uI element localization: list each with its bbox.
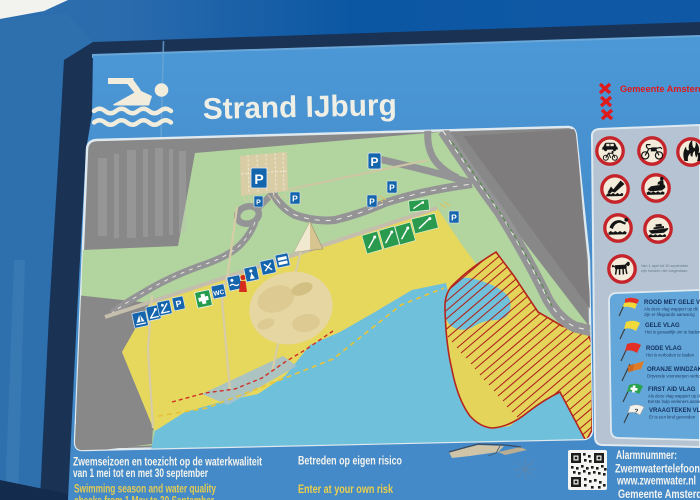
svg-text:Zwemseizoen en toezicht op de: Zwemseizoen en toezicht op de waterkwali…	[73, 457, 262, 469]
svg-text:P: P	[256, 200, 261, 207]
svg-text:P: P	[292, 194, 298, 204]
svg-text:www.zwemwater.nl: www.zwemwater.nl	[616, 474, 696, 488]
svg-text:ROOD MET GELE VLAG: ROOD MET GELE VLAG	[644, 300, 700, 306]
svg-text:Eerste hulp verleners aanwez: Eerste hulp verleners aanwez	[648, 399, 700, 404]
svg-text:Er is een kind gevonden: Er is een kind gevonden	[649, 415, 696, 420]
svg-text:Als deze vlag wappert op dez: Als deze vlag wappert op dez	[648, 394, 700, 399]
svg-text:P: P	[370, 155, 378, 169]
svg-text:GELE VLAG: GELE VLAG	[645, 323, 680, 329]
svg-text:Als deze vlag wappert op dit: Als deze vlag wappert op dit	[644, 307, 699, 312]
svg-text:Alarmnummer:: Alarmnummer:	[616, 448, 677, 462]
svg-text:Swimming season and water qual: Swimming season and water quality	[74, 484, 216, 496]
svg-text:P: P	[389, 183, 395, 193]
svg-text:Strand IJburg: Strand IJburg	[202, 89, 397, 126]
svg-text:Van 1 april tot 30 september: Van 1 april tot 30 september	[641, 264, 689, 268]
svg-text:Drijvende voorwerpen verbo: Drijvende voorwerpen verbo	[647, 374, 700, 379]
svg-text:checks from 1 May to 30 Septem: checks from 1 May to 30 September	[74, 496, 214, 500]
svg-text:VRAAGTEKEN VLAG: VRAAGTEKEN VLAG	[649, 408, 700, 414]
svg-text:Het is gevaarlijk om te baden: Het is gevaarlijk om te baden	[645, 330, 700, 335]
svg-text:van 1 mei tot en met 30 septem: van 1 mei tot en met 30 september	[73, 468, 208, 480]
svg-text:P: P	[369, 197, 375, 207]
svg-text:Gemeente Amsterdam: Gemeente Amsterdam	[620, 84, 700, 94]
svg-text:Het is verboden te baden: Het is verboden te baden	[646, 353, 695, 358]
svg-text:Gemeente Amsterd: Gemeente Amsterd	[618, 487, 700, 500]
svg-text:FIRST AID VLAG: FIRST AID VLAG	[648, 387, 696, 393]
svg-text:zijn er lifeguards aanwezig: zijn er lifeguards aanwezig	[644, 312, 695, 317]
svg-text:ORANJE WINDZAK: ORANJE WINDZAK	[647, 367, 700, 373]
svg-text:P: P	[451, 213, 457, 223]
svg-text:Betreden op eigen risico: Betreden op eigen risico	[298, 456, 402, 468]
svg-text:zijn honden niet toegestaan: zijn honden niet toegestaan	[641, 269, 687, 273]
svg-text:RODE VLAG: RODE VLAG	[646, 346, 682, 352]
svg-text:P: P	[254, 171, 263, 187]
svg-text:Enter at your own risk: Enter at your own risk	[298, 484, 393, 496]
